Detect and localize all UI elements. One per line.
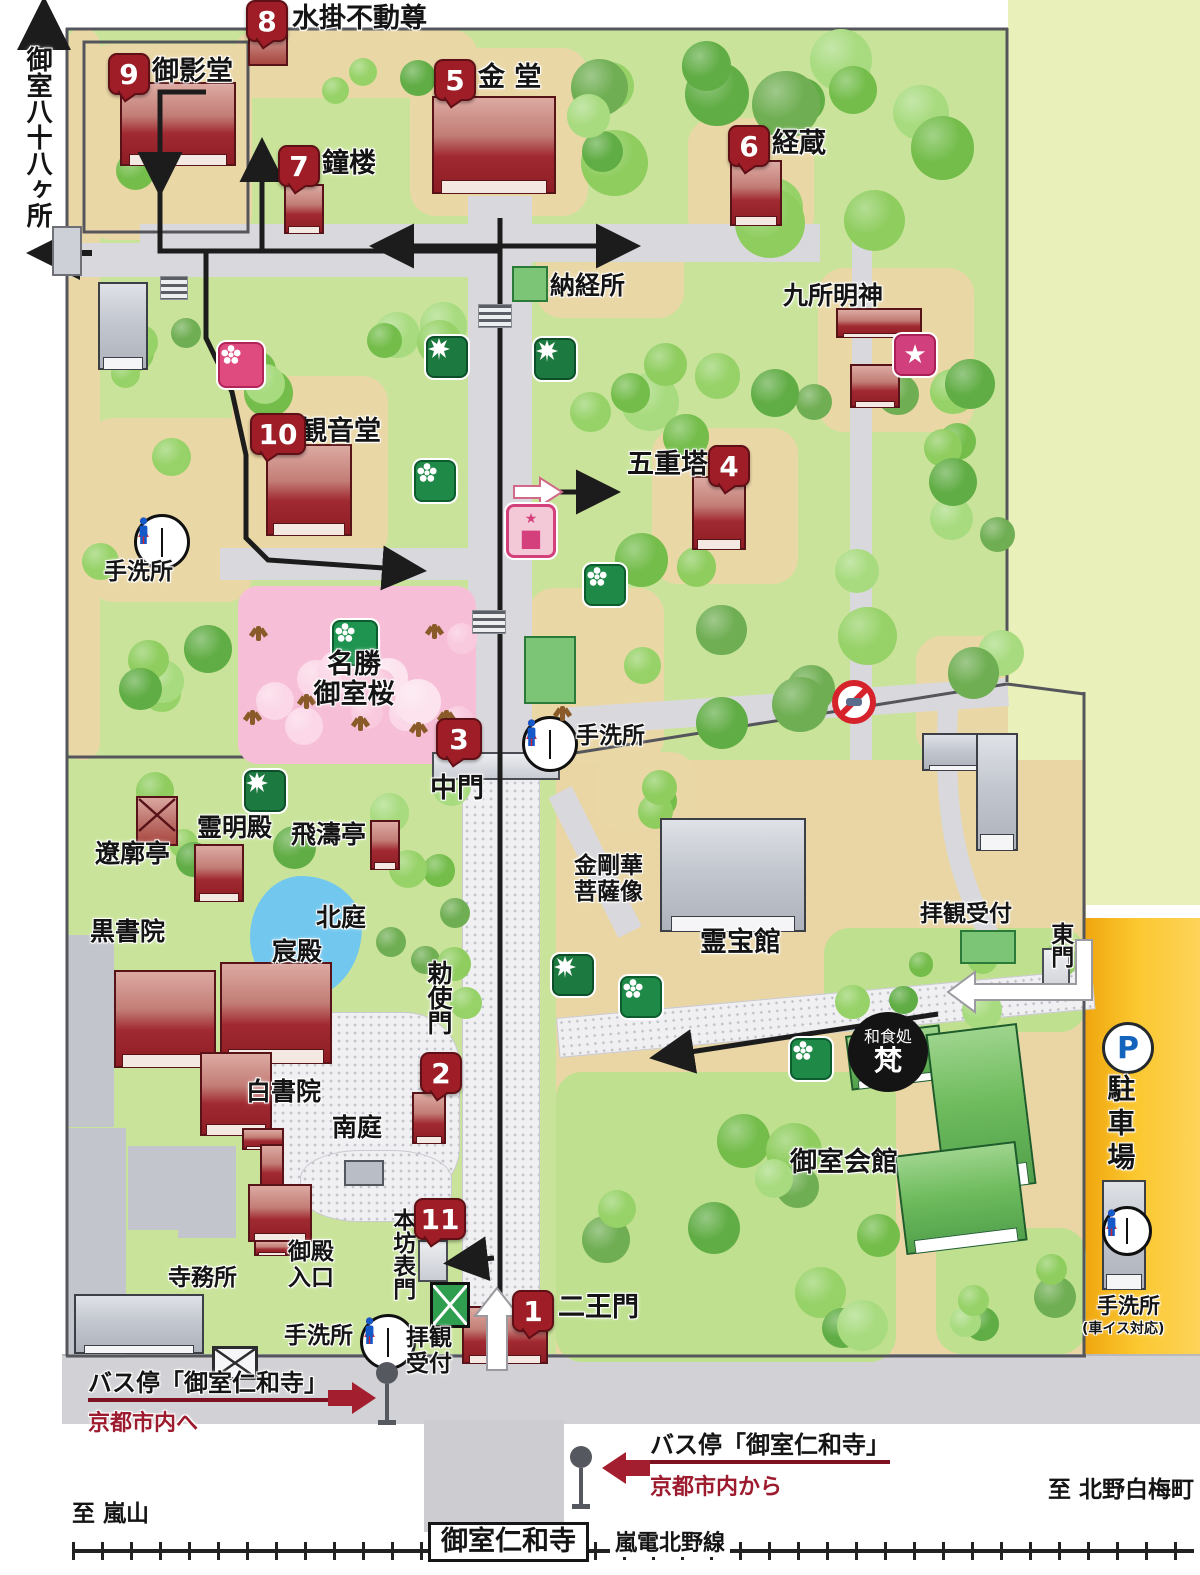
route-arrows — [0, 0, 1200, 1575]
ninnaji-temple-map: ★★■P和食処梵御室八十八ヶ所水掛不動尊御影堂鐘楼金 堂経蔵納経所九所明神観音堂… — [0, 0, 1200, 1575]
